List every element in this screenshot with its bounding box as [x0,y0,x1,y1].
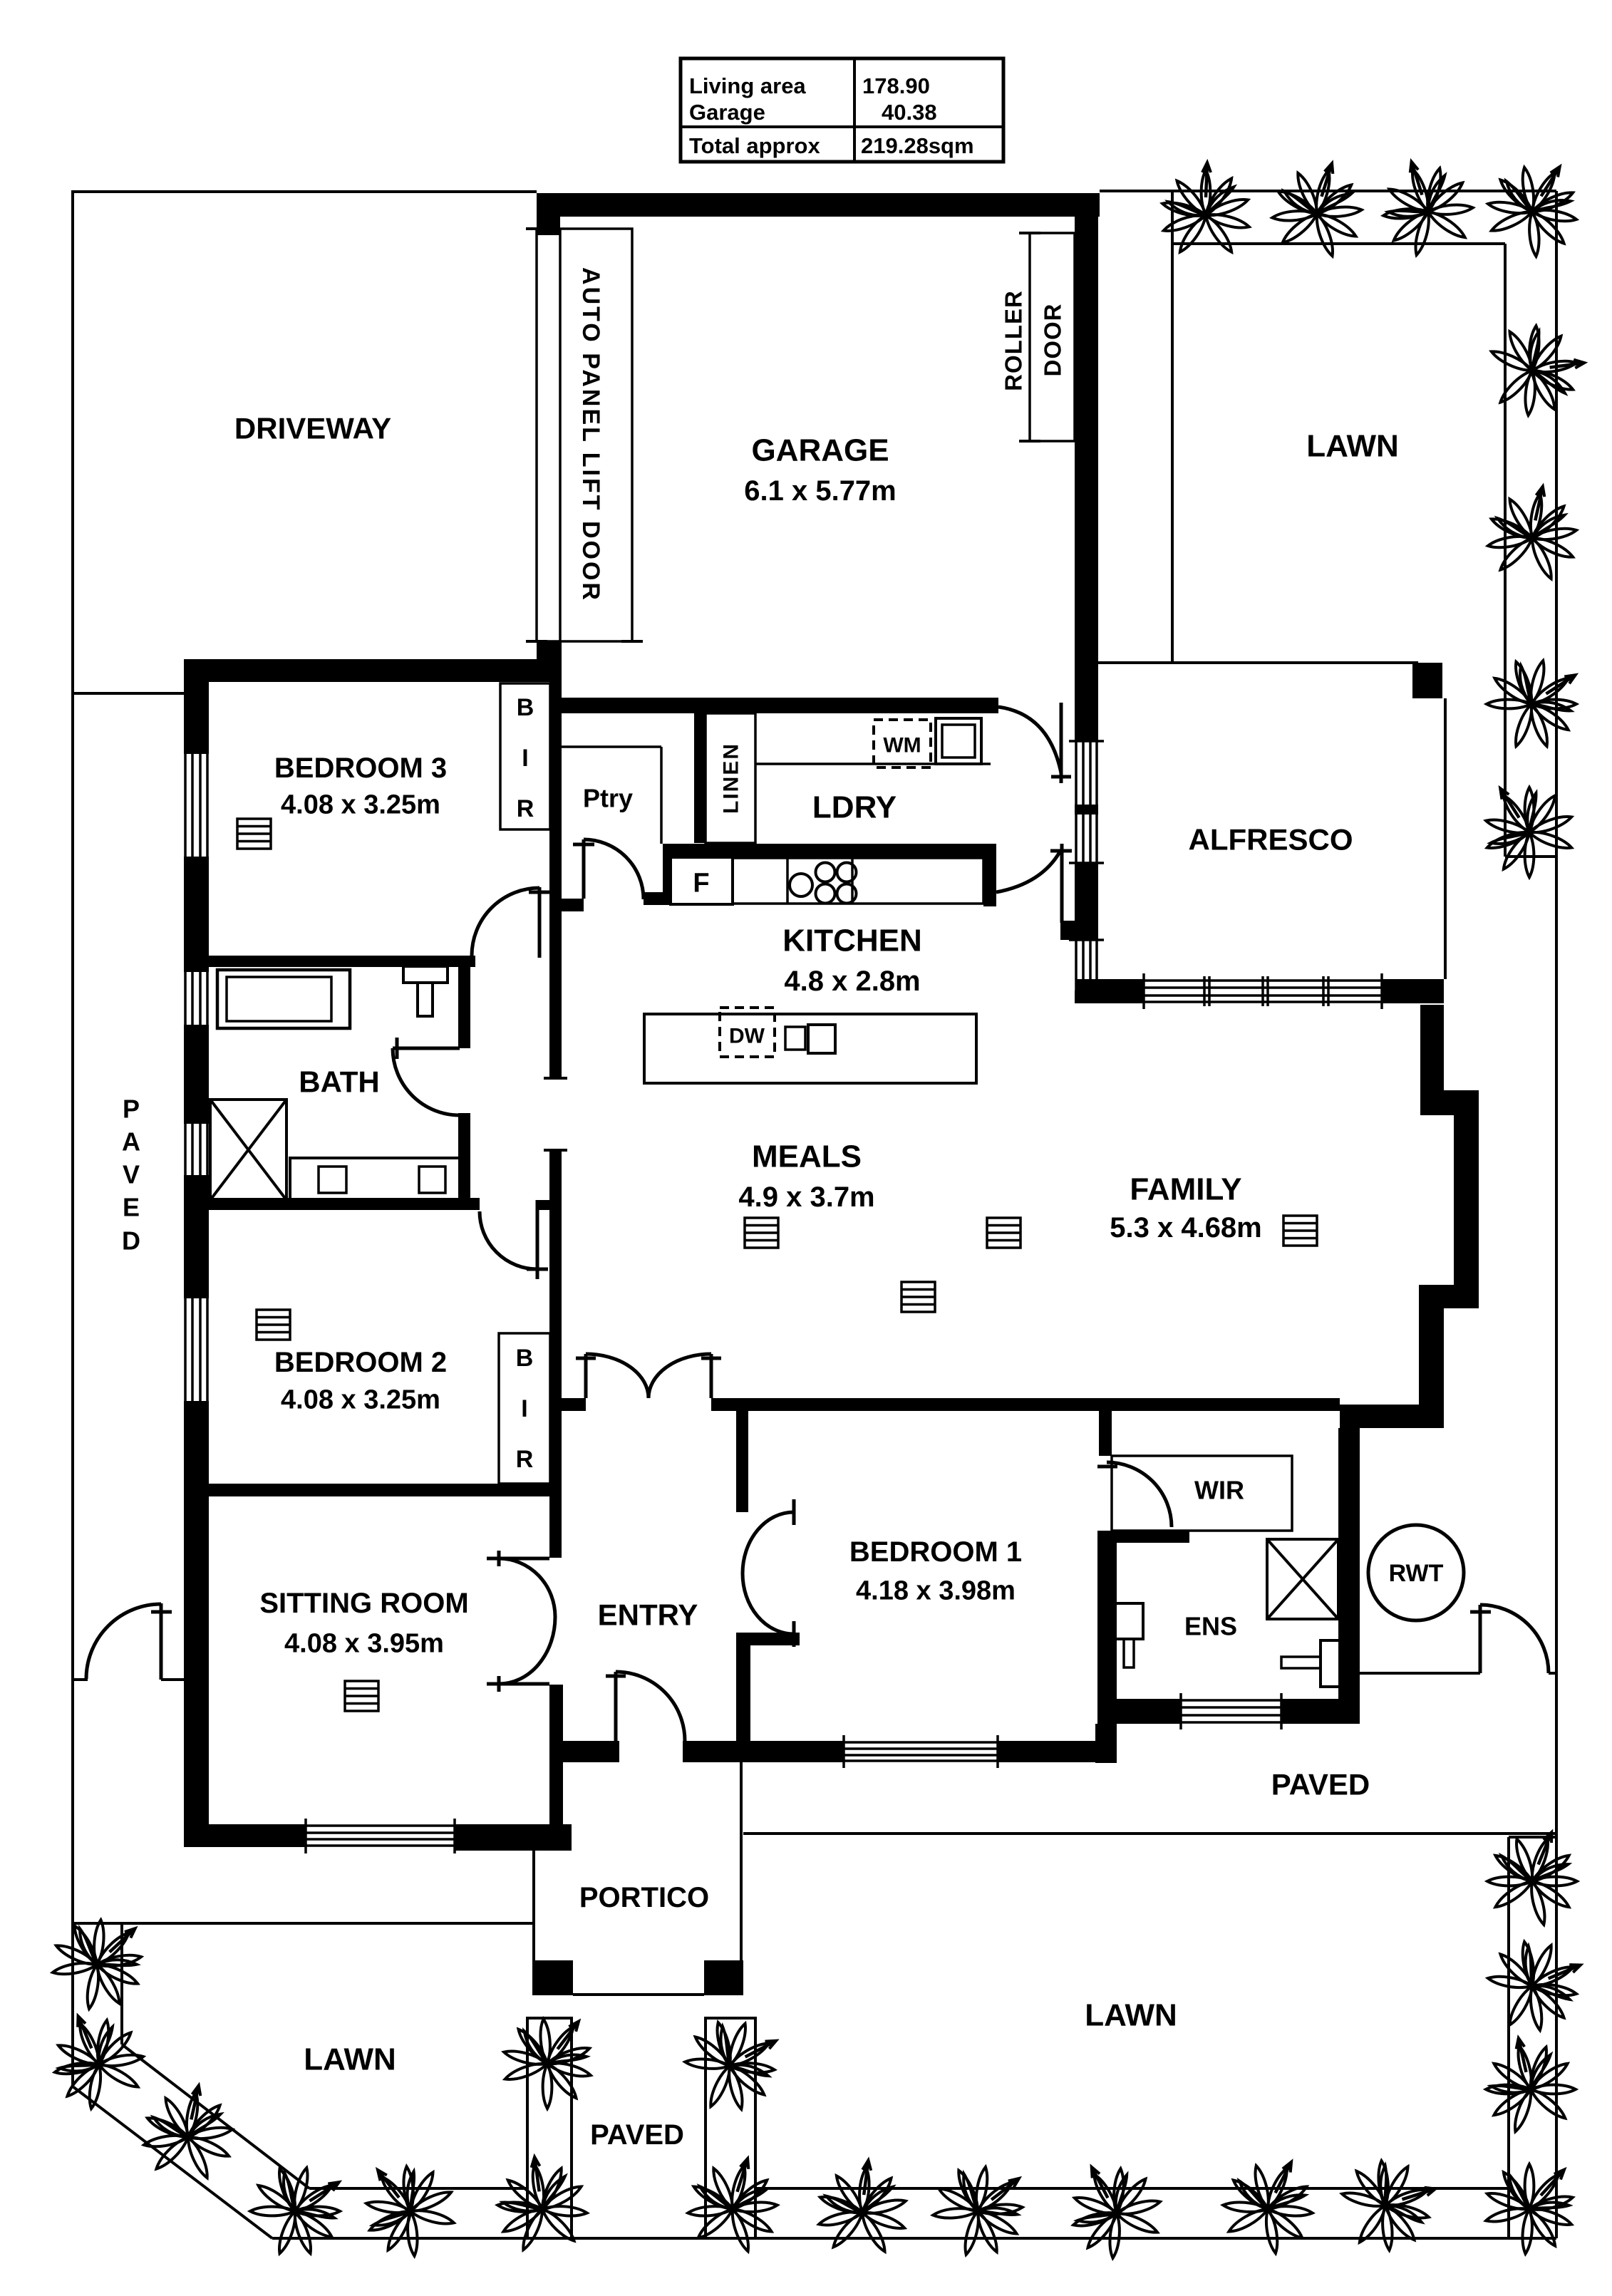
svg-text:4.08 x 3.25m: 4.08 x 3.25m [281,790,440,819]
svg-text:I: I [522,745,528,772]
svg-text:BEDROOM 2: BEDROOM 2 [274,1347,447,1378]
svg-text:ENS: ENS [1184,1612,1237,1641]
svg-text:DOOR: DOOR [1040,304,1066,377]
svg-text:GARAGE: GARAGE [751,433,889,467]
svg-text:WIR: WIR [1194,1476,1244,1505]
svg-text:F: F [693,868,709,898]
svg-text:WM: WM [883,734,921,757]
svg-text:R: R [516,1446,534,1473]
svg-text:Living area: Living area [689,73,806,98]
svg-text:ROLLER: ROLLER [1001,290,1027,391]
svg-text:178.90: 178.90 [862,73,930,98]
svg-text:LINEN: LINEN [720,743,743,814]
svg-text:R: R [517,795,534,822]
svg-text:P: P [123,1095,140,1124]
svg-text:D: D [122,1226,140,1256]
svg-text:BEDROOM 3: BEDROOM 3 [274,753,447,784]
svg-text:KITCHEN: KITCHEN [782,923,922,958]
svg-text:Garage: Garage [689,100,765,125]
svg-text:I: I [521,1395,527,1422]
svg-text:SITTING ROOM: SITTING ROOM [259,1588,468,1619]
svg-text:Ptry: Ptry [583,784,633,813]
svg-text:RWT: RWT [1389,1560,1444,1587]
svg-text:FAMILY: FAMILY [1130,1172,1241,1206]
svg-text:4.18 x 3.98m: 4.18 x 3.98m [856,1576,1016,1605]
svg-text:4.08 x 3.25m: 4.08 x 3.25m [281,1385,440,1415]
svg-text:B: B [516,1345,534,1372]
svg-text:Total approx: Total approx [689,133,820,158]
svg-text:4.9 x 3.7m: 4.9 x 3.7m [738,1181,874,1213]
svg-text:4.8 x 2.8m: 4.8 x 2.8m [784,966,920,997]
svg-text:PAVED: PAVED [1271,1768,1370,1801]
svg-text:LAWN: LAWN [1085,1997,1177,2032]
svg-text:219.28sqm: 219.28sqm [861,133,974,158]
svg-text:PORTICO: PORTICO [579,1882,709,1913]
svg-text:AUTO PANEL LIFT DOOR: AUTO PANEL LIFT DOOR [577,267,604,602]
svg-text:40.38: 40.38 [882,100,937,125]
svg-text:BATH: BATH [299,1065,380,1099]
svg-text:B: B [517,694,534,721]
svg-text:MEALS: MEALS [752,1139,862,1174]
svg-text:4.08 x 3.95m: 4.08 x 3.95m [284,1628,444,1658]
svg-text:DRIVEWAY: DRIVEWAY [234,412,391,445]
svg-text:A: A [122,1127,140,1157]
svg-text:ENTRY: ENTRY [598,1598,698,1632]
svg-text:V: V [123,1160,140,1189]
svg-text:6.1 x 5.77m: 6.1 x 5.77m [744,475,897,507]
svg-text:LDRY: LDRY [812,790,897,824]
svg-text:5.3 x 4.68m: 5.3 x 4.68m [1110,1212,1262,1243]
svg-text:LAWN: LAWN [304,2042,396,2077]
svg-text:DW: DW [729,1025,765,1048]
svg-text:ALFRESCO: ALFRESCO [1189,823,1353,857]
svg-text:LAWN: LAWN [1306,428,1399,463]
svg-text:BEDROOM 1: BEDROOM 1 [849,1536,1022,1568]
svg-text:PAVED: PAVED [590,2119,684,2151]
svg-text:E: E [123,1193,140,1222]
